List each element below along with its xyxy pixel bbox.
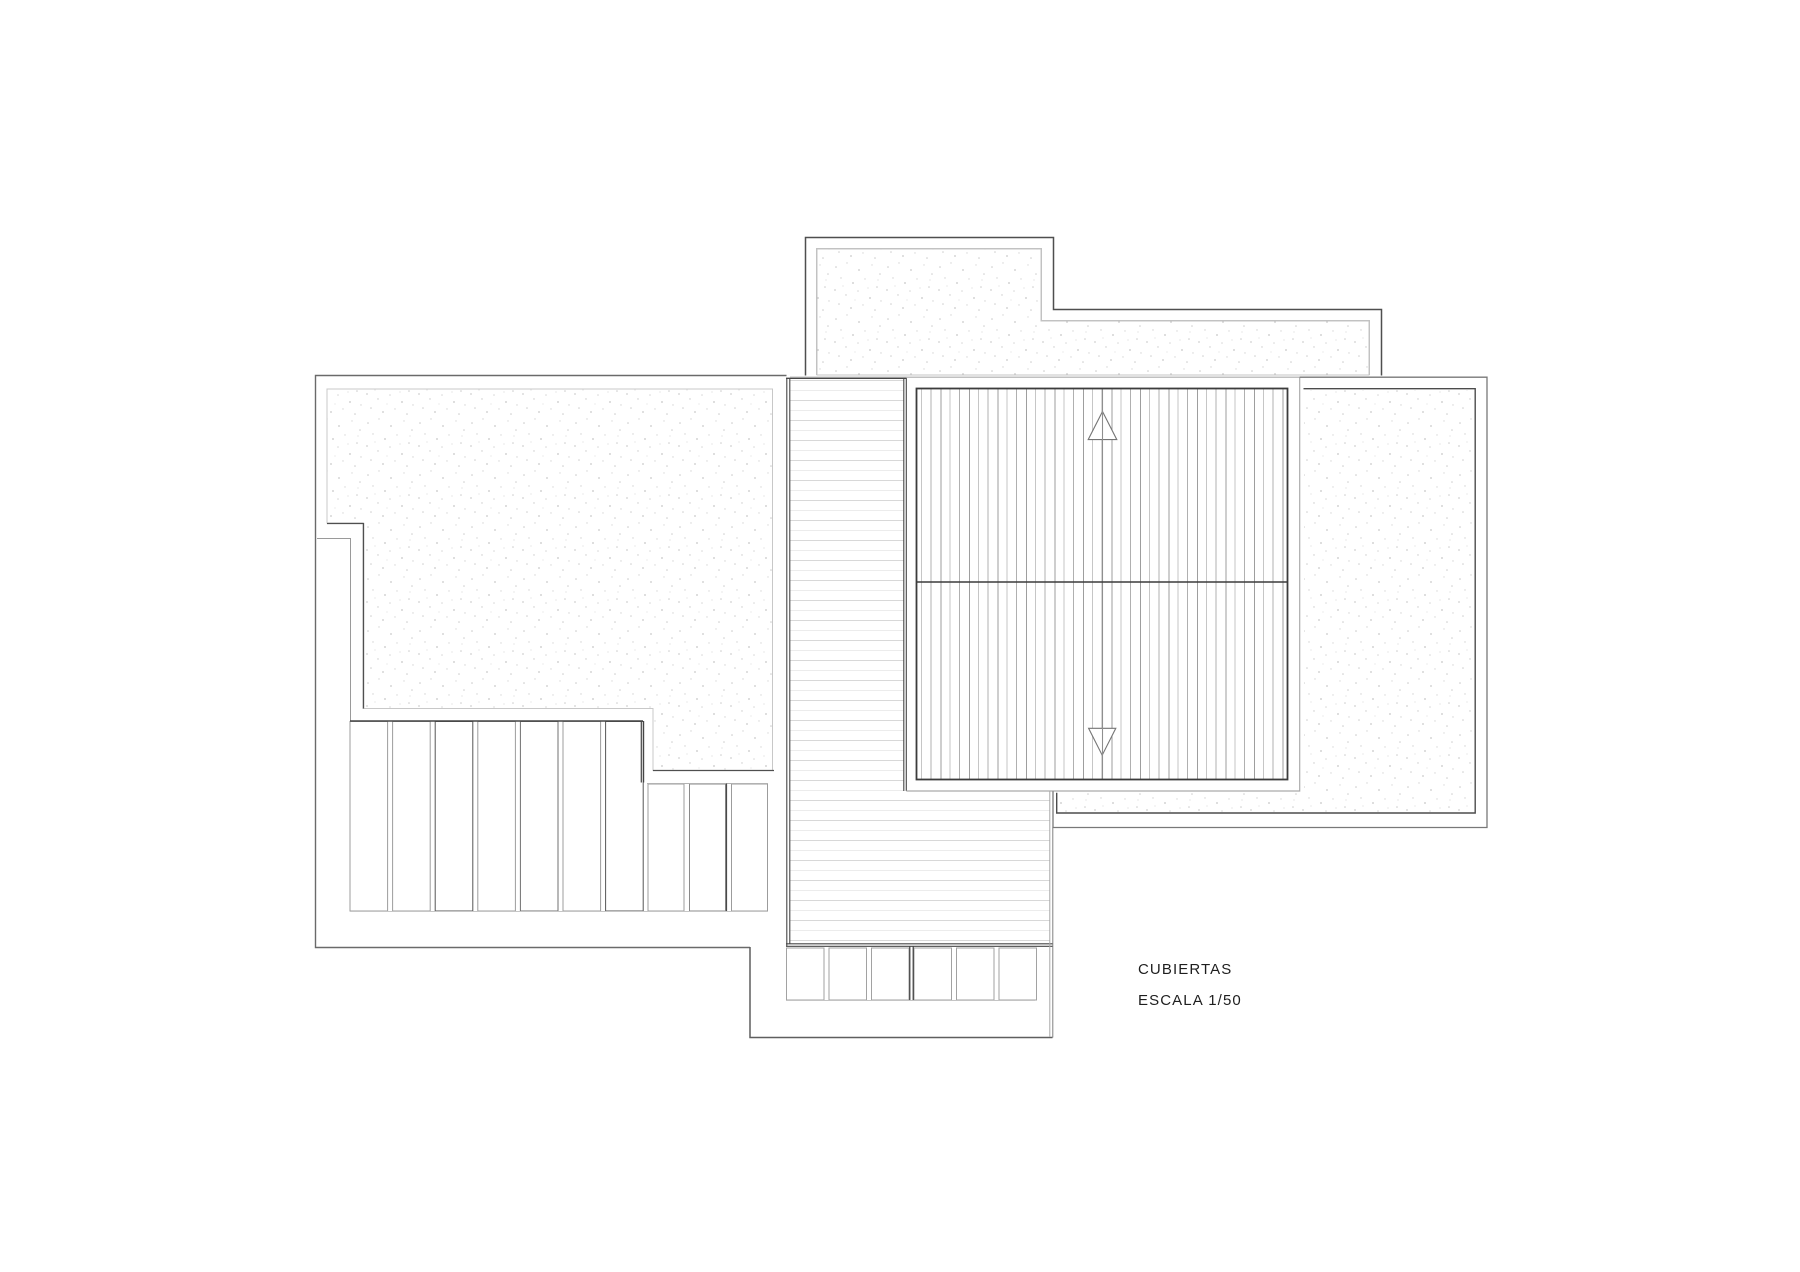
deck-lines-lower bbox=[790, 791, 1050, 943]
slat bbox=[872, 948, 910, 1000]
left-terrace-stipple-fill bbox=[327, 389, 773, 771]
roof-plan-canvas: CUBIERTAS ESCALA 1/50 bbox=[0, 0, 1800, 1272]
bottom-slats-dark-divider bbox=[910, 947, 913, 1001]
upper-roof-terrace bbox=[806, 238, 1382, 376]
slat bbox=[648, 784, 684, 911]
drawing-title: CUBIERTAS bbox=[1138, 961, 1232, 978]
slat bbox=[350, 722, 388, 912]
slat bbox=[957, 948, 995, 1000]
upper-terrace-stipple-fill bbox=[817, 249, 1369, 375]
louver-slats-bottom bbox=[786, 947, 1037, 1001]
deck-lines-upper bbox=[790, 379, 904, 791]
strip-bottom-edge bbox=[786, 944, 1053, 947]
slat bbox=[914, 948, 952, 1000]
roof-plan-page: CUBIERTAS ESCALA 1/50 bbox=[0, 0, 1800, 1272]
strip-left-edge bbox=[787, 378, 790, 946]
slat bbox=[690, 784, 726, 911]
slat bbox=[520, 722, 558, 912]
slat bbox=[393, 722, 431, 912]
slat bbox=[787, 948, 825, 1000]
title-block: CUBIERTAS ESCALA 1/50 bbox=[1138, 961, 1242, 1009]
slat bbox=[829, 948, 867, 1000]
slat bbox=[999, 948, 1037, 1000]
slat bbox=[435, 722, 473, 912]
slat bbox=[606, 722, 644, 912]
drawing-scale: ESCALA 1/50 bbox=[1138, 992, 1242, 1009]
slat bbox=[732, 784, 768, 911]
left-terrace-jog-light-line bbox=[317, 539, 351, 722]
strip-right-edge bbox=[904, 378, 907, 791]
slat bbox=[478, 722, 516, 912]
left-terrace-step-dark-line bbox=[327, 524, 364, 709]
slat bbox=[563, 722, 601, 912]
